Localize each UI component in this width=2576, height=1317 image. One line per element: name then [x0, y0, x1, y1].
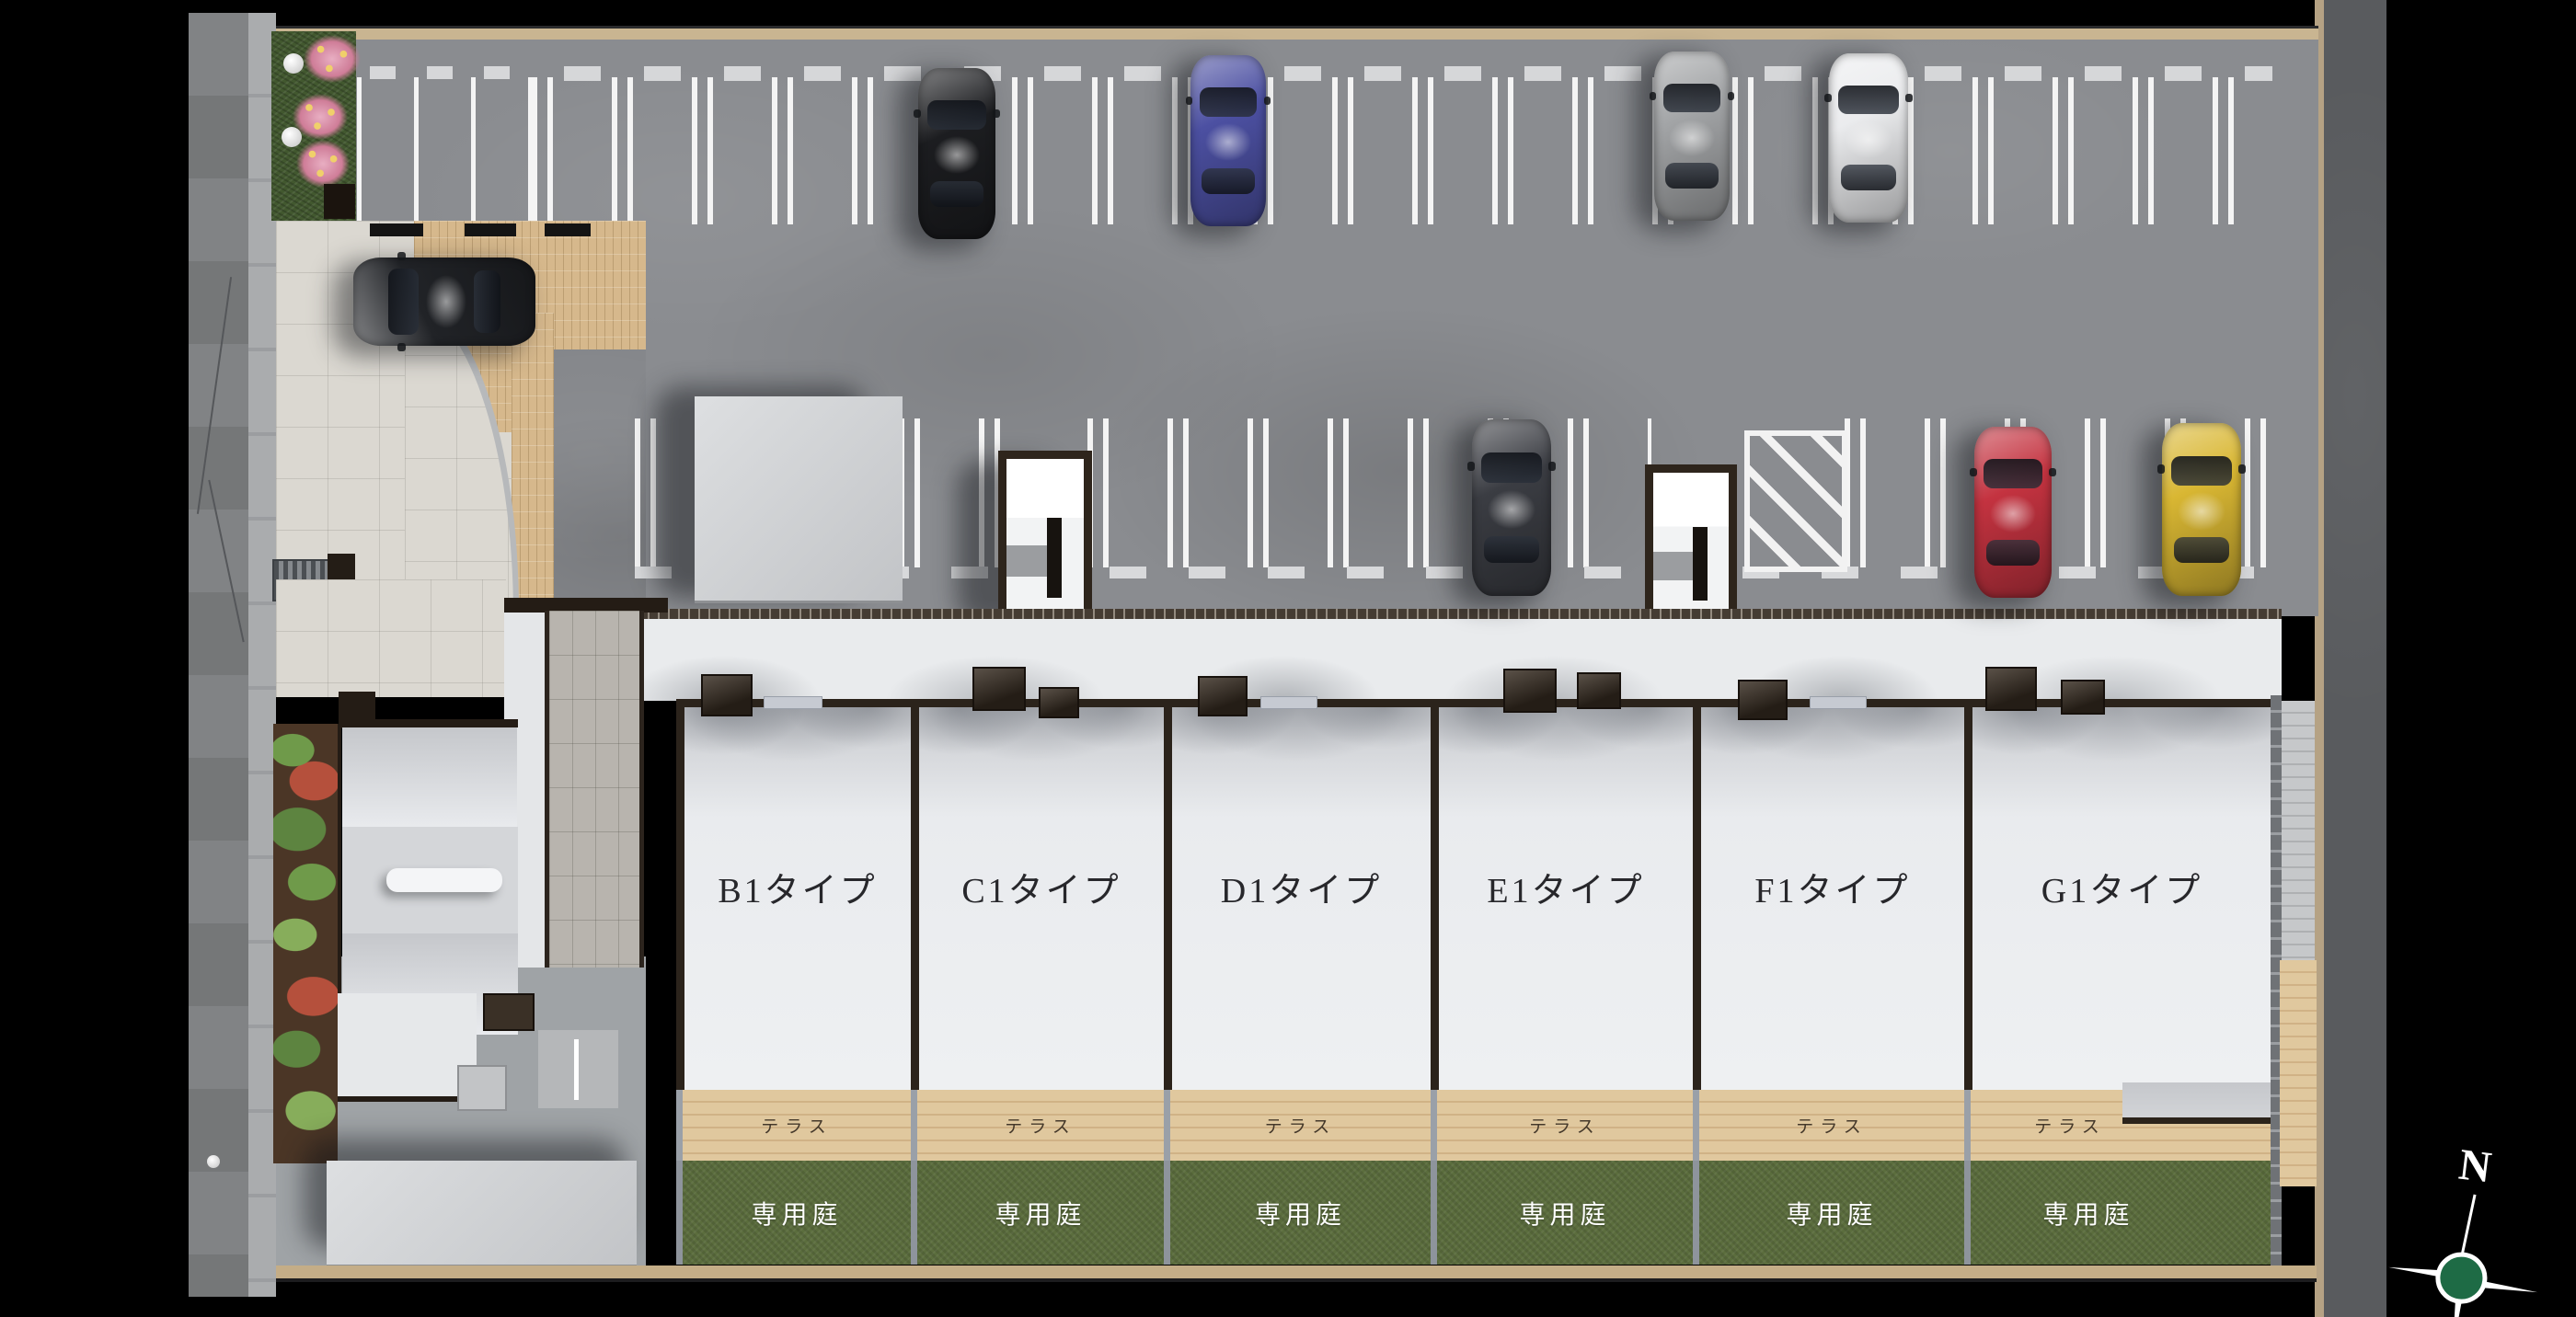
car-windshield [2171, 456, 2231, 486]
car-highlight [934, 136, 980, 174]
car-rear-window [1665, 163, 1718, 189]
car-mirror-right [993, 109, 1000, 118]
black-car-row1 [918, 68, 995, 239]
car-highlight [1990, 495, 2036, 533]
car-highlight [426, 275, 466, 328]
car-windshield [1984, 459, 2042, 488]
car-layer [0, 0, 2576, 1317]
car-windshield [1481, 452, 1541, 483]
compass: N [2378, 1131, 2557, 1317]
car-body-group [1190, 55, 1266, 226]
car-mirror-left [1186, 97, 1192, 105]
black-car-entrance [353, 258, 535, 346]
car-body-group [1654, 52, 1730, 221]
red-car-row2 [1974, 427, 2052, 598]
car-mirror-left [397, 343, 407, 351]
car-windshield [1838, 86, 1898, 114]
blue-car-row1 [1190, 55, 1266, 226]
car-mirror-left [914, 109, 921, 118]
compass-east-point [2478, 1277, 2538, 1299]
site-plan: B1タイプ テラス 専用庭 C1タイプ テラス 専用庭 D1タイプ テラス 専用… [0, 0, 2576, 1317]
car-rear-window [1202, 168, 1254, 194]
car-body-group [2162, 423, 2241, 596]
car-highlight [1205, 123, 1250, 161]
car-mirror-right [397, 252, 407, 260]
car-windshield [388, 269, 420, 336]
car-highlight [1669, 120, 1714, 156]
car-windshield [1200, 87, 1257, 117]
car-mirror-left [1467, 462, 1475, 471]
car-mirror-right [2049, 468, 2056, 476]
dark-gray-car-row2 [1472, 419, 1551, 596]
car-mirror-left [2157, 464, 2165, 473]
white-car-row1 [1829, 53, 1908, 223]
car-body-group [353, 258, 535, 346]
silver-car-row1 [1654, 52, 1730, 221]
car-rear-window [930, 181, 984, 207]
car-highlight [1488, 490, 1535, 529]
car-mirror-right [2238, 464, 2246, 473]
car-rear-window [2174, 537, 2229, 563]
car-rear-window [474, 270, 501, 332]
car-rear-window [1986, 540, 2041, 566]
car-mirror-right [1905, 94, 1913, 102]
car-body-group [1472, 419, 1551, 596]
car-mirror-right [1264, 97, 1271, 105]
yellow-car-row2 [2162, 423, 2241, 596]
car-windshield [1663, 84, 1720, 112]
car-mirror-left [1824, 94, 1832, 102]
car-body-group [918, 68, 995, 239]
car-mirror-left [1970, 468, 1977, 476]
car-highlight [1845, 121, 1892, 158]
car-mirror-right [1548, 462, 1556, 471]
compass-hub [2432, 1249, 2490, 1306]
car-mirror-right [1728, 92, 1734, 100]
car-windshield [927, 100, 986, 130]
car-highlight [2178, 492, 2225, 530]
car-body-group [1829, 53, 1908, 223]
car-rear-window [1841, 165, 1896, 190]
car-body-group [1974, 427, 2052, 598]
car-rear-window [1484, 536, 1539, 563]
